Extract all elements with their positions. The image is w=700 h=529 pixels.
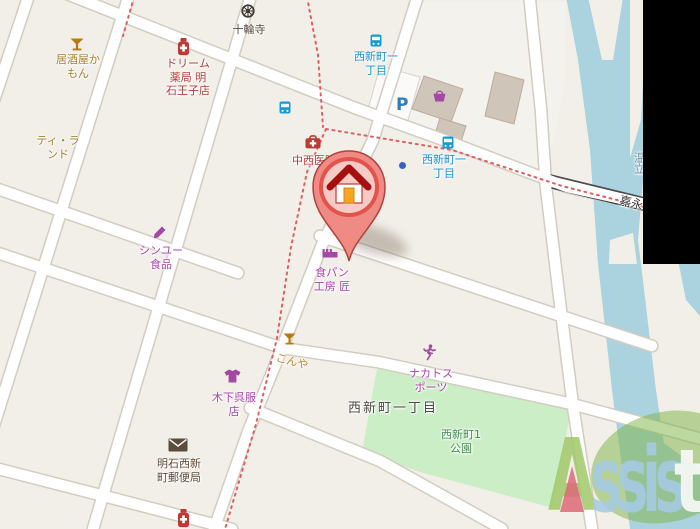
clothes-shirt-icon	[224, 369, 241, 383]
pharmacy-icon	[177, 38, 190, 56]
poi-label-izakaya: 居酒屋か もん	[56, 53, 100, 80]
node-dot	[399, 162, 406, 169]
poi-label-shinyu: シンユー 食品	[139, 244, 183, 271]
poi-label-dream-pharmacy: ドリーム 薬局 明 石王子店	[166, 57, 210, 98]
poi-label-post-office: 明石西新 町郵便局	[157, 457, 201, 484]
black-void-area	[643, 0, 700, 264]
district-label: 西新町一丁目	[348, 402, 438, 416]
bar-martini-icon	[70, 38, 84, 51]
bus-stop-label-1: 西新町一 丁目	[354, 50, 398, 77]
poi-label-kimono-shop: 木下呉服 店	[212, 391, 256, 418]
poi-label-tea-land: ティ・ラ ンド	[36, 134, 79, 161]
location-pin-marker[interactable]	[307, 143, 391, 265]
bus-stop-icon	[279, 101, 291, 114]
post-office-envelope-icon	[168, 438, 188, 452]
poi-label-sports-shop: ナカトス ポーツ	[409, 367, 453, 394]
poi-label-bakery: 食パン 工房 匠	[314, 266, 351, 293]
poi-label-temple: 十輪寺	[233, 23, 266, 37]
bus-stop-icon	[370, 34, 382, 47]
park-label: 西新町1 公園	[441, 428, 481, 455]
pen-icon	[153, 226, 166, 239]
map-viewport[interactable]: P 居酒屋か もん ティ・ラ	[0, 0, 700, 529]
bus-stop-icon	[442, 136, 454, 149]
bar-martini-icon	[283, 333, 296, 345]
buddhist-temple-wheel-icon	[241, 4, 255, 18]
parking-icon: P	[396, 95, 408, 115]
sports-runner-icon	[421, 344, 436, 361]
pharmacy-icon	[177, 509, 190, 529]
shop-basket-icon	[431, 89, 447, 103]
bus-stop-label-2: 西新町一 丁目	[422, 153, 466, 180]
